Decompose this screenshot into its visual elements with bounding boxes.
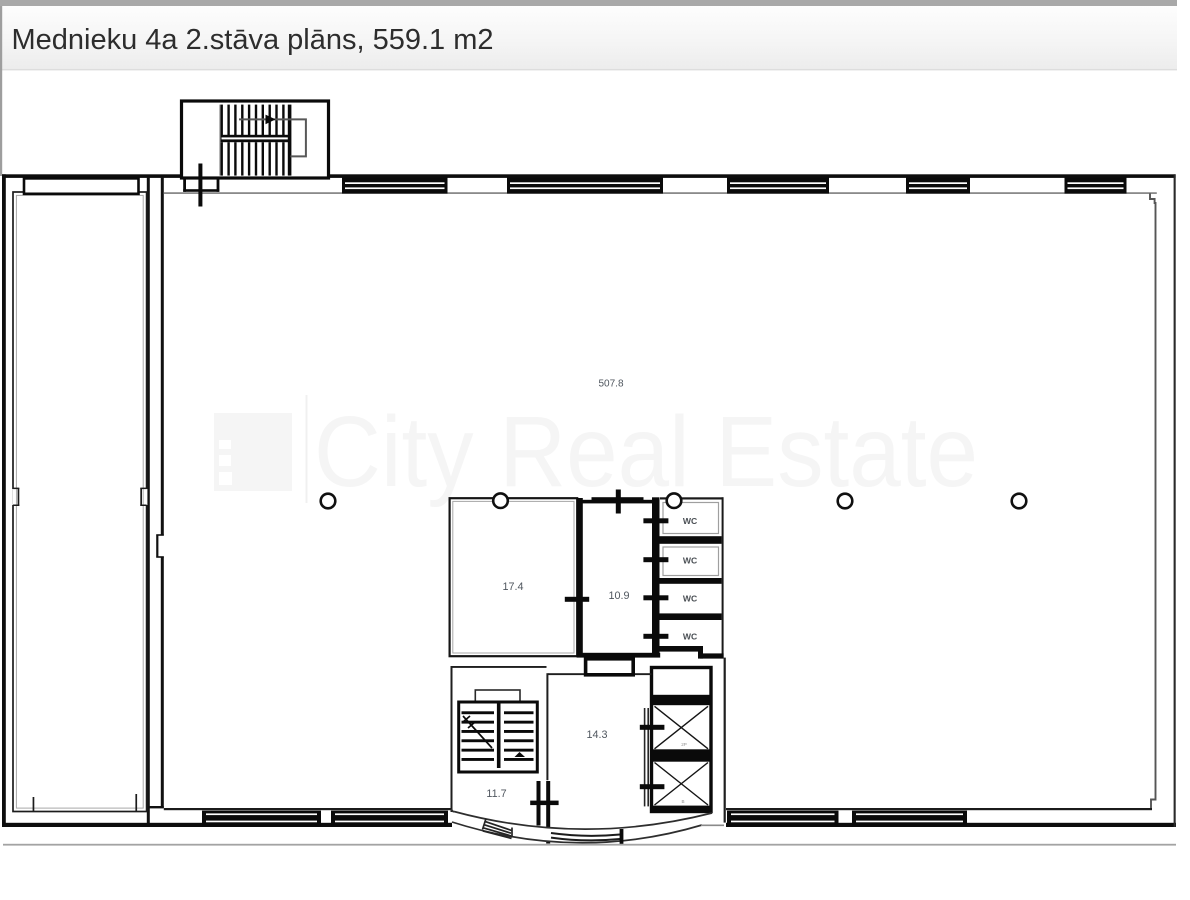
svg-text:2P: 2P bbox=[681, 742, 687, 747]
svg-text:WC: WC bbox=[683, 594, 697, 604]
svg-text:City Real Estate: City Real Estate bbox=[314, 396, 978, 508]
svg-text:14.3: 14.3 bbox=[586, 729, 607, 741]
svg-text:WC: WC bbox=[683, 632, 697, 642]
svg-text:11.7: 11.7 bbox=[486, 788, 506, 800]
svg-text:507.8: 507.8 bbox=[598, 379, 623, 390]
svg-text:WC: WC bbox=[683, 556, 697, 566]
svg-text:Mednieku 4a 2.stāva plāns, 559: Mednieku 4a 2.stāva plāns, 559.1 m2 bbox=[12, 24, 494, 56]
svg-text:17.4: 17.4 bbox=[502, 581, 523, 593]
svg-text:B: B bbox=[681, 799, 684, 804]
svg-text:WC: WC bbox=[683, 516, 697, 526]
svg-text:10.9: 10.9 bbox=[608, 590, 629, 602]
